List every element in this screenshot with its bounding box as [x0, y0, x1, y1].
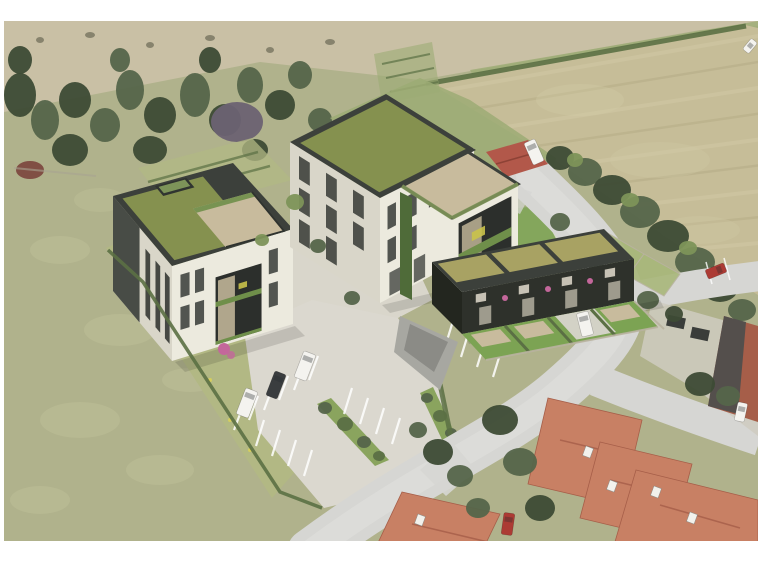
tree	[110, 48, 130, 72]
texture-blob	[266, 47, 274, 53]
tree	[447, 465, 473, 487]
tree	[337, 417, 353, 431]
tree	[133, 136, 167, 164]
window	[195, 300, 204, 326]
tree	[357, 436, 371, 448]
window-slot	[155, 261, 160, 333]
tree	[310, 239, 326, 253]
tree	[423, 439, 453, 465]
tree	[679, 241, 697, 255]
tree	[716, 386, 740, 406]
tree	[567, 153, 583, 167]
door	[565, 289, 577, 309]
tree	[550, 213, 570, 231]
tree	[665, 306, 683, 322]
tree	[52, 134, 88, 166]
door	[479, 305, 491, 325]
texture-blob	[30, 236, 90, 264]
window	[195, 268, 204, 294]
tree	[180, 73, 210, 117]
tree	[286, 194, 304, 210]
window	[388, 202, 396, 230]
balcony-flower	[502, 295, 508, 301]
balcony-flower	[545, 286, 551, 292]
tree	[344, 291, 360, 305]
tree	[211, 102, 263, 142]
screenshot-root	[0, 0, 758, 564]
window	[269, 248, 278, 275]
flower-bush	[227, 351, 235, 359]
border-left	[0, 0, 4, 564]
tree	[144, 97, 176, 133]
tree	[90, 108, 120, 142]
texture-blob	[10, 486, 70, 514]
tree	[482, 405, 518, 435]
tree	[503, 448, 537, 476]
tree	[265, 90, 295, 120]
window	[388, 236, 396, 264]
window	[269, 281, 278, 308]
texture-blob	[40, 402, 120, 438]
texture-blob	[36, 37, 44, 43]
tree	[685, 372, 715, 396]
tree	[421, 393, 433, 403]
texture-blob	[85, 32, 95, 38]
border-bottom	[0, 541, 758, 564]
window-slot	[165, 272, 170, 344]
tree	[318, 402, 332, 414]
balcony-stone-wall	[218, 275, 235, 341]
texture-blob	[536, 84, 624, 116]
tree	[116, 70, 144, 110]
window	[180, 304, 189, 330]
texture-blob	[126, 455, 194, 485]
tree	[4, 73, 36, 117]
texture-blob	[325, 39, 335, 45]
balcony-flower	[587, 278, 593, 284]
door	[522, 297, 534, 317]
tree	[199, 47, 221, 73]
green-wall	[400, 192, 412, 300]
tree	[31, 100, 59, 140]
tree	[288, 61, 312, 89]
tree	[8, 46, 32, 74]
tree	[621, 193, 639, 207]
texture-blob	[205, 35, 215, 41]
window	[180, 272, 189, 298]
door	[608, 281, 620, 301]
tree	[373, 451, 385, 461]
tree	[409, 422, 427, 438]
texture-blob	[610, 142, 710, 178]
tree	[237, 67, 263, 103]
tree	[728, 299, 756, 321]
tree	[59, 82, 91, 118]
border-top	[0, 0, 758, 21]
texture-blob	[146, 42, 154, 48]
aerial-photo	[4, 21, 758, 564]
tree	[466, 498, 490, 518]
scene-svg	[0, 0, 758, 564]
tree	[255, 234, 269, 246]
tree	[525, 495, 555, 521]
